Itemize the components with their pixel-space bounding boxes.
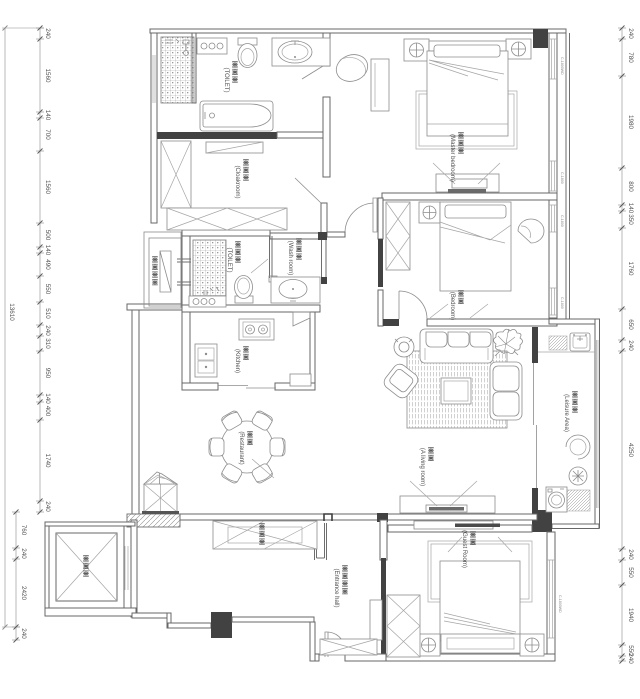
svg-text:13610: 13610 bbox=[8, 303, 15, 321]
svg-text:510: 510 bbox=[44, 308, 51, 319]
svg-text:240: 240 bbox=[627, 28, 634, 39]
svg-text:(Leisure Area): (Leisure Area) bbox=[563, 394, 569, 432]
svg-text:(Cloakroom): (Cloakroom) bbox=[234, 165, 240, 198]
svg-text:140: 140 bbox=[627, 203, 634, 214]
svg-text:2420: 2420 bbox=[20, 586, 27, 601]
svg-text:4250: 4250 bbox=[627, 443, 634, 458]
svg-text:780: 780 bbox=[627, 52, 634, 63]
svg-text:(Wash room): (Wash room) bbox=[287, 241, 293, 275]
svg-text:240: 240 bbox=[44, 325, 51, 336]
svg-text:1940: 1940 bbox=[627, 608, 634, 623]
svg-text:240: 240 bbox=[627, 549, 634, 560]
svg-text:(Entrance hall): (Entrance hall) bbox=[333, 568, 339, 607]
svg-text:550: 550 bbox=[44, 284, 51, 295]
svg-text:C-1800: C-1800 bbox=[560, 215, 564, 227]
svg-text:240: 240 bbox=[627, 340, 634, 351]
svg-text:950: 950 bbox=[44, 368, 51, 379]
svg-text:C-1800WD: C-1800WD bbox=[560, 57, 564, 75]
svg-text:1740: 1740 bbox=[44, 453, 51, 468]
svg-text:760: 760 bbox=[20, 525, 27, 536]
svg-text:(TOILET): (TOILET) bbox=[223, 68, 229, 93]
svg-text:550: 550 bbox=[627, 567, 634, 578]
svg-text:240: 240 bbox=[627, 653, 634, 664]
svg-text:C-1800: C-1800 bbox=[560, 172, 564, 184]
svg-text:1980: 1980 bbox=[627, 115, 634, 130]
svg-text:(TOILET): (TOILET) bbox=[226, 248, 232, 273]
svg-text:(Restaurant): (Restaurant) bbox=[238, 431, 244, 464]
svg-text:1560: 1560 bbox=[44, 68, 51, 83]
svg-text:310: 310 bbox=[44, 338, 51, 349]
svg-text:140: 140 bbox=[44, 110, 51, 121]
svg-text:C-1800: C-1800 bbox=[560, 297, 564, 309]
svg-text:1560: 1560 bbox=[44, 180, 51, 195]
svg-text:(Guest Room): (Guest Room) bbox=[461, 530, 467, 568]
svg-text:140: 140 bbox=[44, 393, 51, 404]
svg-text:650: 650 bbox=[627, 319, 634, 330]
svg-text:(Bedroom): (Bedroom) bbox=[449, 292, 455, 320]
svg-text:490: 490 bbox=[44, 259, 51, 270]
svg-text:800: 800 bbox=[627, 181, 634, 192]
svg-text:240: 240 bbox=[20, 548, 27, 559]
svg-text:(Kitchen): (Kitchen) bbox=[234, 349, 240, 373]
svg-text:(A living room): (A living room) bbox=[419, 448, 425, 486]
svg-text:240: 240 bbox=[44, 28, 51, 39]
svg-text:140: 140 bbox=[44, 245, 51, 256]
svg-text:500: 500 bbox=[44, 230, 51, 241]
svg-text:240: 240 bbox=[44, 501, 51, 512]
svg-text:(Master bedroom): (Master bedroom) bbox=[449, 134, 455, 182]
svg-text:350: 350 bbox=[627, 214, 634, 225]
svg-text:C-1800WD: C-1800WD bbox=[558, 595, 562, 613]
svg-text:700: 700 bbox=[44, 129, 51, 140]
svg-text:240: 240 bbox=[20, 628, 27, 639]
svg-text:400: 400 bbox=[44, 406, 51, 417]
svg-text:1760: 1760 bbox=[627, 261, 634, 276]
